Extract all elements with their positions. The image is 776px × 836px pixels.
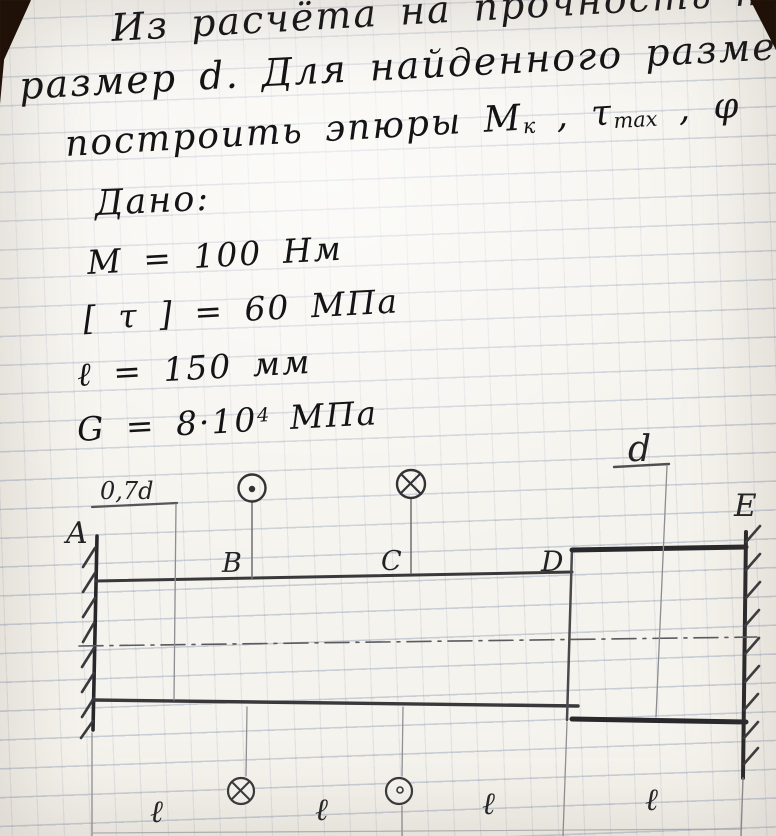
length-extension-lines — [92, 707, 567, 836]
torque-b-top — [239, 475, 266, 580]
shaft-small-section-outline — [93, 572, 578, 706]
point-label-a: A — [63, 516, 88, 551]
point-label-b: B — [221, 548, 242, 579]
segment-length-label-ab: ℓ — [150, 794, 163, 830]
length-dimension-line — [92, 829, 742, 833]
torque-c-bottom — [386, 778, 412, 804]
dimension-07d — [92, 503, 177, 700]
segment-length-label-bc: ℓ — [315, 792, 328, 828]
shaft-step-line — [567, 549, 572, 720]
left-wall-support — [81, 536, 97, 738]
segment-length-label-de: ℓ — [645, 782, 658, 818]
shaft-centerline — [79, 637, 757, 646]
segment-length-label-cd: ℓ — [482, 786, 495, 822]
point-label-d: D — [540, 545, 563, 578]
point-label-c: C — [381, 546, 402, 577]
torque-b-bottom — [228, 778, 254, 804]
point-label-e: E — [733, 488, 757, 524]
torque-out-of-plane-icon — [386, 778, 412, 804]
notebook-photo: Из расчёта на прочность найти размер d. … — [0, 0, 776, 836]
dimension-07d-label: 0,7d — [100, 477, 154, 505]
torque-dot — [249, 486, 255, 492]
dimension-d — [614, 464, 669, 717]
right-wall-support — [741, 526, 760, 836]
stepped-shaft-diagram: A B C D E 0,7d d ℓ ℓ ℓ ℓ — [0, 0, 776, 836]
dimension-d-label: d — [628, 429, 651, 470]
torque-cross-stroke — [402, 475, 421, 494]
right-extension-line — [741, 778, 743, 836]
